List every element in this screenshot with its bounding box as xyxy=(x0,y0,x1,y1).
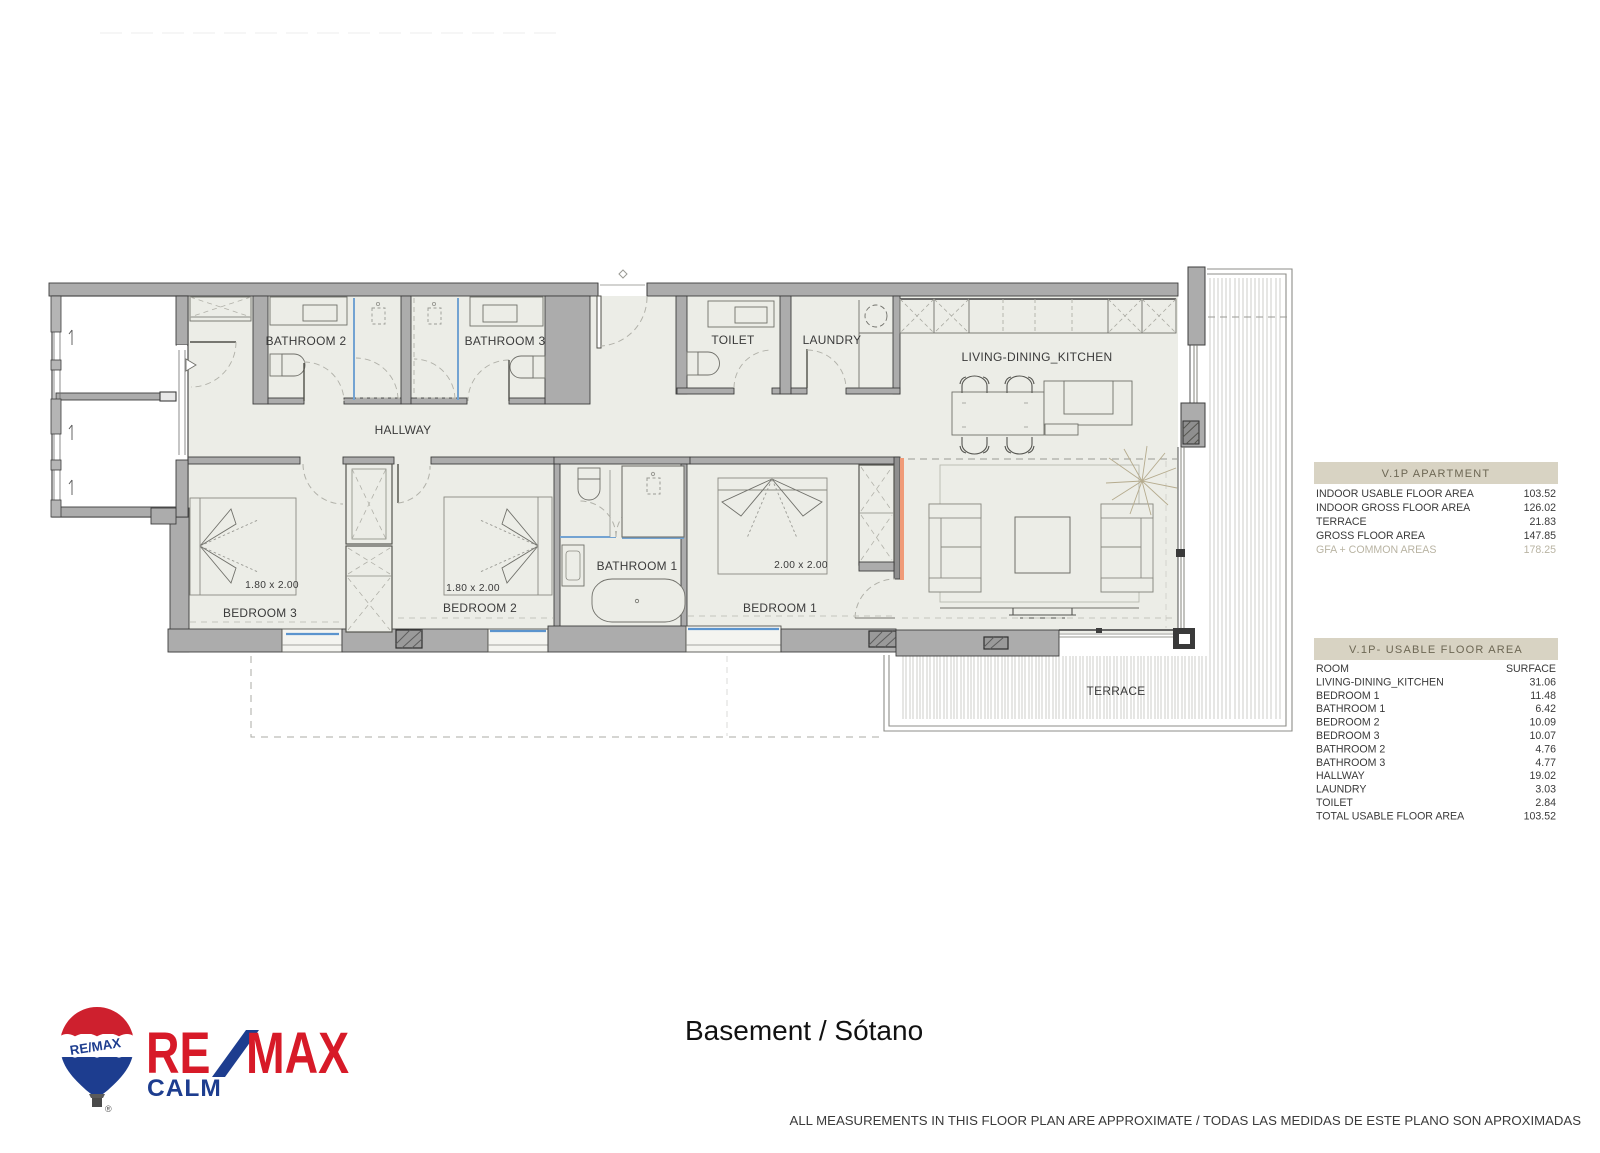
svg-text:126.02: 126.02 xyxy=(1524,502,1557,514)
svg-text:MAX: MAX xyxy=(246,1021,349,1086)
svg-text:V.1P- USABLE FLOOR AREA: V.1P- USABLE FLOOR AREA xyxy=(1349,644,1523,656)
svg-text:BEDROOM 1: BEDROOM 1 xyxy=(743,601,817,615)
svg-text:BEDROOM 3: BEDROOM 3 xyxy=(223,606,297,620)
svg-text:LAUNDRY: LAUNDRY xyxy=(803,333,862,347)
svg-text:ALL MEASUREMENTS IN THIS FLOOR: ALL MEASUREMENTS IN THIS FLOOR PLAN ARE … xyxy=(790,1113,1582,1128)
svg-text:HALLWAY: HALLWAY xyxy=(1316,770,1365,782)
svg-text:LAUNDRY: LAUNDRY xyxy=(1316,784,1366,796)
svg-text:TOILET: TOILET xyxy=(1316,797,1353,809)
svg-text:103.52: 103.52 xyxy=(1524,810,1557,822)
svg-text:2.00 x 2.00: 2.00 x 2.00 xyxy=(774,560,828,571)
svg-text:BEDROOM 2: BEDROOM 2 xyxy=(443,601,517,615)
svg-text:BATHROOM 2: BATHROOM 2 xyxy=(1316,743,1385,755)
svg-text:10.09: 10.09 xyxy=(1529,717,1556,729)
svg-text:®: ® xyxy=(105,1104,112,1114)
svg-text:19.02: 19.02 xyxy=(1529,770,1556,782)
svg-text:2.84: 2.84 xyxy=(1535,797,1556,809)
svg-text:147.85: 147.85 xyxy=(1524,530,1557,542)
svg-text:INDOOR USABLE FLOOR AREA: INDOOR USABLE FLOOR AREA xyxy=(1316,488,1475,500)
svg-text:LIVING-DINING_KITCHEN: LIVING-DINING_KITCHEN xyxy=(1316,676,1444,688)
svg-text:4.76: 4.76 xyxy=(1535,743,1556,755)
svg-text:Basement / Sótano: Basement / Sótano xyxy=(685,1015,923,1046)
svg-text:CALM: CALM xyxy=(147,1075,222,1102)
svg-text:1.80 x 2.00: 1.80 x 2.00 xyxy=(446,583,500,594)
svg-text:10.07: 10.07 xyxy=(1529,730,1556,742)
svg-text:31.06: 31.06 xyxy=(1529,676,1556,688)
svg-text:BATHROOM 1: BATHROOM 1 xyxy=(597,559,678,573)
svg-text:BATHROOM 3: BATHROOM 3 xyxy=(465,334,546,348)
svg-text:SURFACE: SURFACE xyxy=(1506,663,1556,675)
svg-text:HALLWAY: HALLWAY xyxy=(375,423,432,437)
svg-text:BEDROOM 2: BEDROOM 2 xyxy=(1316,717,1380,729)
svg-text:1.80 x 2.00: 1.80 x 2.00 xyxy=(245,580,299,591)
svg-text:INDOOR GROSS FLOOR AREA: INDOOR GROSS FLOOR AREA xyxy=(1316,502,1471,514)
svg-text:BATHROOM 1: BATHROOM 1 xyxy=(1316,703,1385,715)
svg-text:21.83: 21.83 xyxy=(1529,516,1556,528)
svg-text:3.03: 3.03 xyxy=(1535,784,1556,796)
svg-text:TOILET: TOILET xyxy=(711,333,754,347)
svg-text:4.77: 4.77 xyxy=(1535,757,1556,769)
svg-text:TERRACE: TERRACE xyxy=(1316,516,1367,528)
svg-text:GFA + COMMON AREAS: GFA + COMMON AREAS xyxy=(1316,544,1436,556)
svg-text:V.1P APARTMENT: V.1P APARTMENT xyxy=(1382,468,1491,480)
svg-text:BATHROOM 2: BATHROOM 2 xyxy=(266,334,347,348)
svg-text:TOTAL USABLE FLOOR AREA: TOTAL USABLE FLOOR AREA xyxy=(1316,810,1465,822)
svg-text:ROOM: ROOM xyxy=(1316,663,1349,675)
svg-text:11.48: 11.48 xyxy=(1530,690,1556,702)
svg-text:103.52: 103.52 xyxy=(1524,488,1557,500)
svg-text:LIVING-DINING_KITCHEN: LIVING-DINING_KITCHEN xyxy=(962,350,1113,364)
svg-text:BEDROOM 3: BEDROOM 3 xyxy=(1316,730,1380,742)
svg-text:6.42: 6.42 xyxy=(1535,703,1556,715)
svg-text:178.25: 178.25 xyxy=(1524,544,1557,556)
svg-text:BEDROOM 1: BEDROOM 1 xyxy=(1316,690,1380,702)
svg-text:BATHROOM 3: BATHROOM 3 xyxy=(1316,757,1385,769)
svg-text:TERRACE: TERRACE xyxy=(1087,684,1146,698)
svg-text:GROSS FLOOR AREA: GROSS FLOOR AREA xyxy=(1316,530,1426,542)
